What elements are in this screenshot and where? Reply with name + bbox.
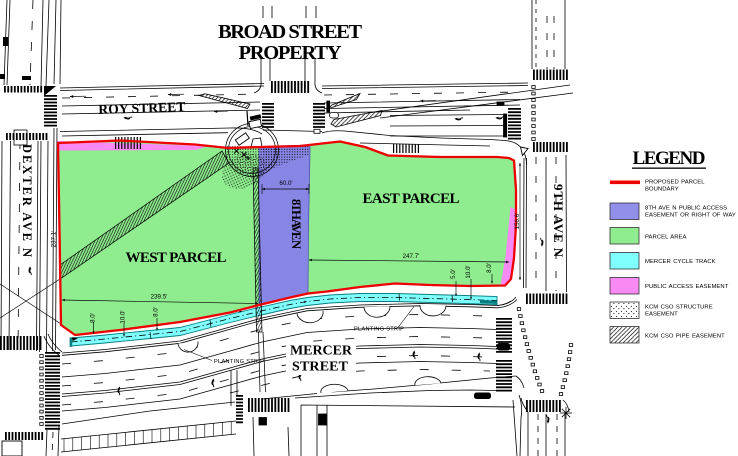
- svg-text:8.0′: 8.0′: [153, 306, 160, 317]
- svg-text:ROY STREET: ROY STREET: [98, 99, 185, 117]
- svg-text:10.0′: 10.0′: [465, 265, 472, 279]
- svg-text:8.0′: 8.0′: [486, 262, 493, 273]
- svg-text:KCM CSO PIPE EASEMENT: KCM CSO PIPE EASEMENT: [645, 334, 725, 340]
- svg-text:LEGEND: LEGEND: [633, 148, 706, 169]
- svg-text:PROPOSED PARCEL: PROPOSED PARCEL: [645, 180, 705, 186]
- svg-text:WEST PARCEL: WEST PARCEL: [126, 250, 227, 266]
- svg-text:PLANTING STRIP: PLANTING STRIP: [214, 359, 264, 365]
- svg-text:BROAD STREET: BROAD STREET: [218, 21, 362, 43]
- svg-text:5.0′: 5.0′: [450, 268, 457, 279]
- svg-text:KCM CSO STRUCTURE: KCM CSO STRUCTURE: [645, 305, 713, 311]
- svg-text:8TH AVE N PUBLIC ACCESS: 8TH AVE N PUBLIC ACCESS: [645, 206, 727, 212]
- svg-text:EASEMENT OR RIGHT OF WAY: EASEMENT OR RIGHT OF WAY: [645, 213, 736, 219]
- svg-text:BOUNDARY: BOUNDARY: [645, 187, 679, 193]
- svg-text:8TH AVE N: 8TH AVE N: [289, 199, 303, 249]
- svg-text:247.7′: 247.7′: [403, 253, 420, 260]
- svg-text:PUBLIC ACCESS EASEMENT: PUBLIC ACCESS EASEMENT: [645, 284, 729, 290]
- svg-text:PROPERTY: PROPERTY: [239, 42, 342, 64]
- svg-text:EASEMENT: EASEMENT: [645, 312, 678, 318]
- svg-text:237.1′: 237.1′: [51, 230, 58, 247]
- svg-text:MERCER CYCLE TRACK: MERCER CYCLE TRACK: [645, 259, 716, 265]
- svg-text:10.0′: 10.0′: [120, 310, 127, 324]
- svg-text:8.0′: 8.0′: [90, 312, 97, 323]
- svg-text:MERCER: MERCER: [290, 344, 353, 359]
- svg-text:PARCEL AREA: PARCEL AREA: [645, 235, 687, 241]
- svg-text:EAST PARCEL: EAST PARCEL: [363, 191, 460, 207]
- svg-text:239.5′: 239.5′: [151, 294, 168, 301]
- svg-text:PLANTING STRIP: PLANTING STRIP: [354, 327, 404, 333]
- svg-text:60.0′: 60.0′: [279, 180, 293, 187]
- svg-text:DEXTER AVE N: DEXTER AVE N: [20, 144, 34, 257]
- svg-text:STREET: STREET: [292, 360, 349, 375]
- svg-text:9TH AVE N: 9TH AVE N: [551, 184, 566, 258]
